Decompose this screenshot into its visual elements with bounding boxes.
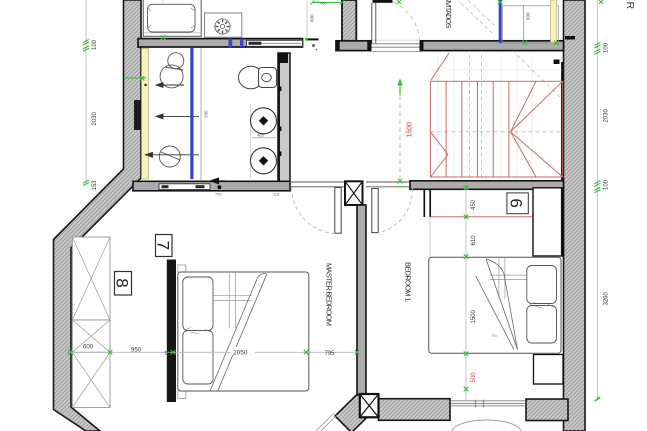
svg-text:600: 600 xyxy=(83,345,94,351)
svg-text:750: 750 xyxy=(491,334,497,338)
svg-text:7: 7 xyxy=(153,241,172,250)
svg-text:R: R xyxy=(624,2,636,10)
svg-text:2030: 2030 xyxy=(92,111,98,125)
svg-text:100: 100 xyxy=(604,42,610,53)
svg-text:118: 118 xyxy=(273,192,280,197)
svg-text:100: 100 xyxy=(604,179,610,190)
svg-text:100: 100 xyxy=(92,39,98,50)
svg-text:460: 460 xyxy=(320,1,327,6)
svg-text:600: 600 xyxy=(526,12,531,20)
svg-text:153: 153 xyxy=(92,180,98,191)
svg-text:NVITADOS: NVITADOS xyxy=(444,0,453,28)
svg-text:750: 750 xyxy=(215,192,222,197)
svg-text:MASTER BEDROOM: MASTER BEDROOM xyxy=(325,263,334,326)
svg-text:2050: 2050 xyxy=(233,350,248,357)
svg-text:200: 200 xyxy=(204,110,209,118)
svg-text:50: 50 xyxy=(165,351,171,357)
svg-text:3260: 3260 xyxy=(604,291,610,305)
svg-text:465: 465 xyxy=(257,133,264,138)
svg-text:1500: 1500 xyxy=(407,122,414,138)
svg-text:610: 610 xyxy=(471,235,477,246)
svg-text:950: 950 xyxy=(131,348,142,354)
svg-text:450: 450 xyxy=(471,199,477,210)
svg-text:6: 6 xyxy=(507,198,526,207)
svg-text:BEDROOM 1.: BEDROOM 1. xyxy=(404,262,413,303)
svg-text:1500: 1500 xyxy=(471,309,477,323)
svg-text:8: 8 xyxy=(112,278,131,287)
svg-text:795: 795 xyxy=(325,351,336,357)
svg-text:2030: 2030 xyxy=(604,108,610,122)
svg-text:600: 600 xyxy=(310,14,315,22)
svg-text:500: 500 xyxy=(471,372,477,383)
